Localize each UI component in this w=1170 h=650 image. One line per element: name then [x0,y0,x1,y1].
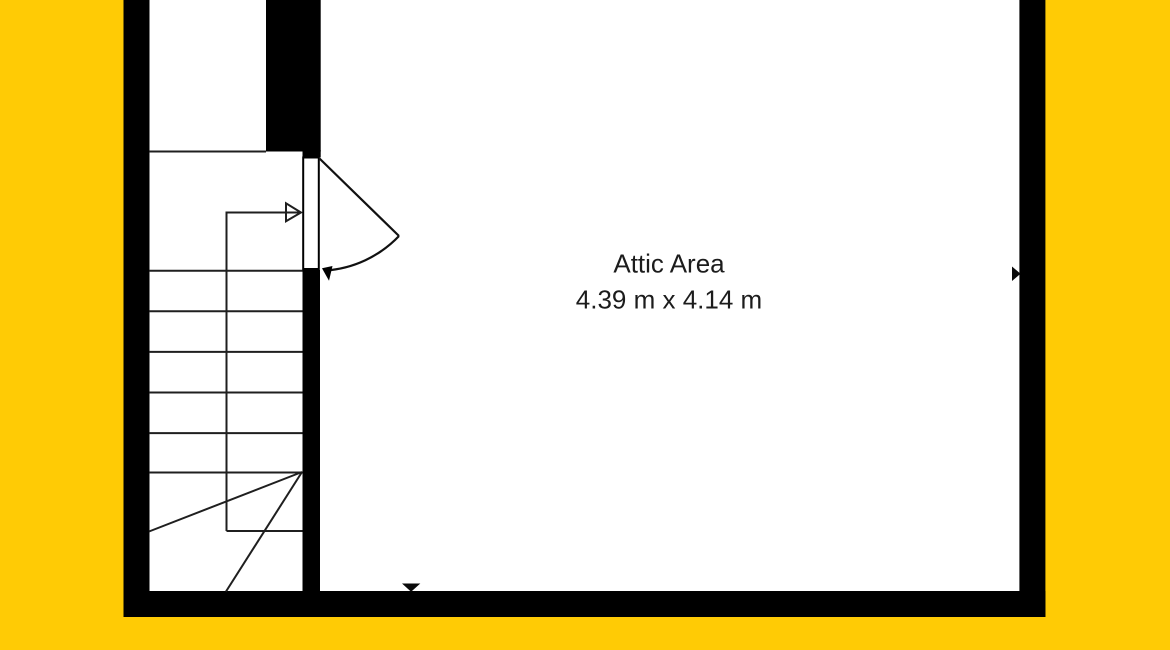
svg-text:4.39 m x 4.14 m: 4.39 m x 4.14 m [576,285,762,315]
svg-text:Attic Area: Attic Area [613,249,725,279]
